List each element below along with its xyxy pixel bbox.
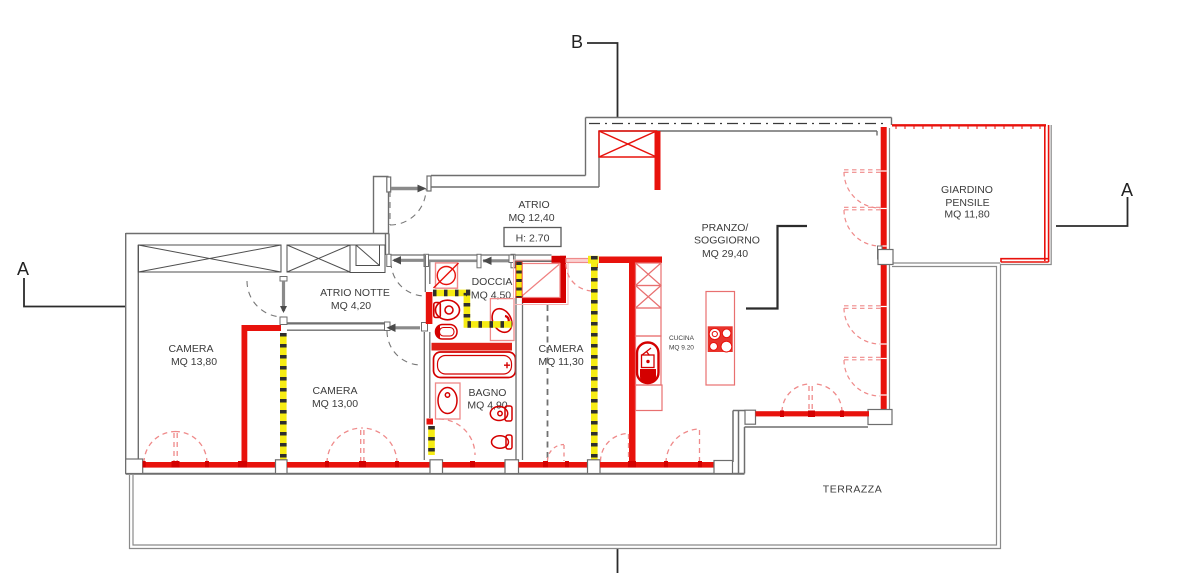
svg-text:MQ 13,80: MQ 13,80 [171,356,217,368]
svg-text:ATRIO NOTTE: ATRIO NOTTE [320,287,390,299]
svg-text:A: A [17,259,29,279]
svg-text:H: 2.70: H: 2.70 [516,233,550,245]
svg-text:MQ 4,20: MQ 4,20 [331,300,371,312]
svg-text:BAGNO: BAGNO [469,387,507,399]
svg-text:MQ 4,50: MQ 4,50 [471,290,511,302]
svg-text:TERRAZZA: TERRAZZA [823,484,882,496]
svg-text:GIARDINO: GIARDINO [941,184,993,196]
svg-text:MQ 13,00: MQ 13,00 [312,398,358,410]
svg-text:MQ 11,30: MQ 11,30 [538,356,583,368]
svg-text:MQ 4,90: MQ 4,90 [467,400,507,412]
svg-text:PRANZO/: PRANZO/ [702,222,749,234]
svg-text:MQ 11,80: MQ 11,80 [944,209,989,221]
svg-text:CAMERA: CAMERA [169,343,214,355]
svg-text:CAMERA: CAMERA [313,385,358,397]
svg-text:MQ 9.20: MQ 9.20 [669,345,694,352]
svg-text:SOGGIORNO: SOGGIORNO [694,235,760,247]
svg-text:ATRIO: ATRIO [518,199,549,211]
svg-text:PENSILE: PENSILE [945,197,989,209]
svg-text:CUCINA: CUCINA [669,335,695,342]
svg-text:DOCCIA: DOCCIA [472,276,513,288]
svg-text:CAMERA: CAMERA [539,343,584,355]
svg-text:MQ 12,40: MQ 12,40 [508,212,554,224]
svg-text:MQ 29,40: MQ 29,40 [702,248,748,260]
svg-text:B: B [571,32,583,52]
